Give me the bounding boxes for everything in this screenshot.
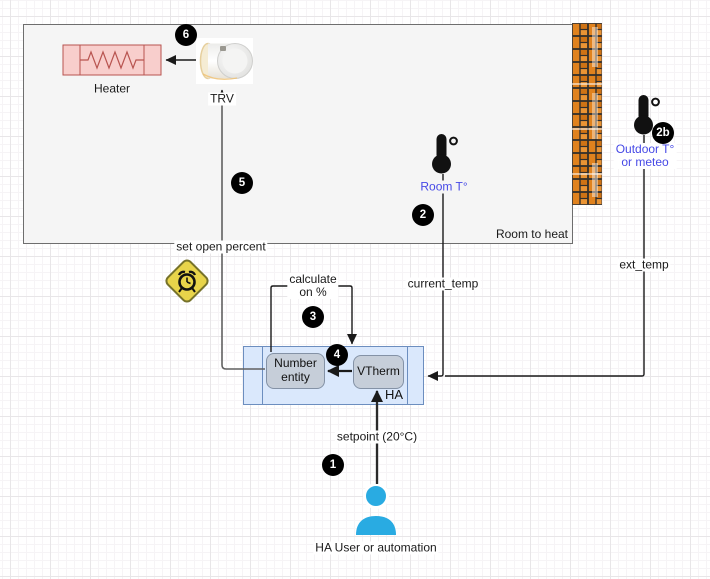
delay-warning-icon [161, 255, 213, 307]
step-badge-2b: 2b [652, 122, 674, 144]
outdoor-temp-label: Outdoor T° or meteo [614, 143, 677, 169]
trv-label: TRV [208, 93, 236, 106]
ext-temp-label: ext_temp [617, 259, 670, 272]
step-badge-1: 1 [322, 454, 344, 476]
heater-resistor-icon [62, 44, 162, 76]
calculate-label: calculate on % [287, 273, 338, 299]
ha-box-left-divider [262, 347, 263, 404]
vtherm-label: VTherm [357, 365, 400, 379]
heater-label: Heater [94, 83, 130, 96]
ha-user-label: HA User or automation [313, 542, 438, 555]
step-badge-3: 3 [302, 306, 324, 328]
room-thermometer-icon [429, 132, 459, 174]
current-temp-label: current_temp [406, 278, 481, 291]
number-entity-label: Number entity [270, 357, 322, 385]
set-open-percent-label: set open percent [174, 241, 267, 254]
setpoint-label: setpoint (20°C) [335, 431, 419, 444]
number-entity-node: Number entity [266, 353, 325, 389]
room-title: Room to heat [496, 227, 568, 241]
ha-box-label: HA [382, 387, 406, 402]
vtherm-node: VTherm [353, 355, 404, 389]
trv-valve-image [196, 38, 253, 84]
step-badge-6: 6 [175, 24, 197, 46]
room-temp-label: Room T° [418, 181, 469, 194]
brick-wall-icon [572, 23, 602, 205]
user-person-icon [353, 483, 399, 535]
diagram-canvas: Room to heat [0, 0, 710, 579]
step-badge-4: 4 [326, 344, 348, 366]
ha-box-right-divider [407, 347, 408, 404]
step-badge-2: 2 [412, 204, 434, 226]
step-badge-5: 5 [231, 172, 253, 194]
